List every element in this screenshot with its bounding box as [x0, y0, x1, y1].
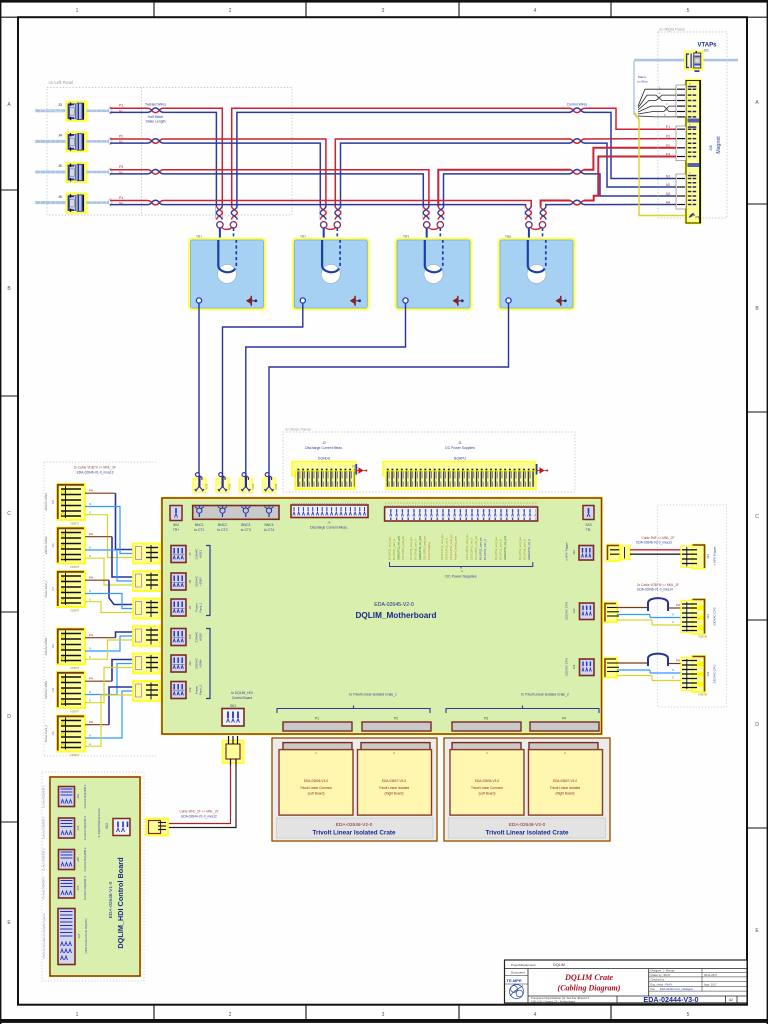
svg-text:EDA-02648-V2-0: EDA-02648-V2-0 [336, 822, 373, 828]
svg-text:D: D [755, 722, 759, 728]
svg-text:RS16 Control bus to DQLPU Type: RS16 Control bus to DQLPU Type A [42, 913, 46, 958]
svg-text:J5: J5 [58, 164, 62, 168]
svg-text:EDA-03606-V3-0: EDA-03606-V3-0 [475, 779, 500, 783]
svg-text:E: E [672, 676, 674, 680]
svg-text:HDB2: HDB2 [199, 633, 203, 641]
svg-text:J24: J24 [572, 664, 576, 669]
svg-text:C: C [7, 511, 11, 517]
svg-text:15V-2/PS2_and_ps+: 15V-2/PS2_and_ps+ [474, 535, 478, 560]
svg-text:P4: P4 [119, 196, 123, 200]
svg-text:230VAC CPS: 230VAC CPS [565, 602, 569, 620]
svg-text:Control DQHDB 2: Control DQHDB 2 [83, 816, 87, 840]
svg-text:VDB79: VDB79 [70, 522, 79, 526]
svg-text:Mains: Mains [638, 75, 647, 79]
svg-text:GND1/PS2_ref_0: GND1/PS2_ref_0 [527, 539, 531, 560]
svg-text:9V-1/PS6_com_0: 9V-1/PS6_com_0 [523, 539, 527, 560]
svg-text:-: - [741, 998, 742, 1002]
svg-text:P2: P2 [666, 135, 670, 139]
svg-text:J30: J30 [51, 731, 55, 736]
svg-text:EDA-02646-V1-0_mxa14: EDA-02646-V1-0_mxa14 [637, 588, 673, 592]
svg-text:to CT4: to CT4 [264, 528, 274, 532]
svg-text:File:: File: [651, 987, 656, 991]
svg-text:Power Pack_2: Power Pack_2 [44, 724, 48, 742]
svg-text:08-11-2017: 08-11-2017 [704, 973, 718, 977]
svg-text:EDA-03607-V3-0: EDA-03607-V3-0 [382, 779, 407, 783]
svg-text:PE: PE [352, 465, 356, 469]
svg-text:Control DQHDB 3: Control DQHDB 3 [42, 848, 46, 871]
svg-text:PH: PH [89, 489, 93, 493]
svg-text:1: 1 [76, 1012, 79, 1018]
svg-text:6V-1/PS1_com_0: 6V-1/PS1_com_0 [392, 539, 396, 560]
svg-text:E: E [89, 511, 91, 515]
svg-text:A2: A2 [729, 998, 733, 1002]
svg-text:J36: J36 [709, 145, 713, 151]
svg-text:J13: J13 [76, 794, 80, 799]
svg-text:J22: J22 [572, 550, 576, 555]
svg-text:SK3: SK3 [585, 523, 591, 527]
svg-text:E: E [89, 699, 91, 703]
svg-text:1: 1 [76, 8, 79, 14]
svg-text:Control DQHDB 4: Control DQHDB 4 [42, 876, 46, 899]
svg-text:J20: J20 [703, 49, 708, 53]
svg-text:DQLIM Crate: DQLIM Crate [564, 973, 613, 982]
svg-text:E: E [89, 655, 91, 659]
svg-text:to Trivolt Linear Isolated Cra: to Trivolt Linear Isolated Crate_1 [349, 693, 397, 697]
svg-text:DQLIM_HDI Control Board: DQLIM_HDI Control Board [116, 857, 125, 948]
svg-text:2x Cable VDB7M <> MNL_3F: 2x Cable VDB7M <> MNL_3F [637, 583, 679, 587]
svg-text:Project/Equipment: Project/Equipment [511, 963, 536, 967]
svg-text:x APS Trigger: x APS Trigger [713, 547, 717, 566]
svg-text:P1: P1 [315, 717, 319, 721]
svg-text:Control DQHDB 1: Control DQHDB 1 [83, 784, 87, 808]
svg-text:Control DQHDB 4: Control DQHDB 4 [83, 876, 87, 900]
svg-text:E: E [89, 742, 91, 746]
svg-text:Power Pack_1: Power Pack_1 [44, 580, 48, 598]
svg-text:N: N [89, 690, 91, 694]
svg-text:Discharge Current Meas.: Discharge Current Meas. [305, 446, 343, 450]
svg-text:J4: J4 [328, 520, 331, 524]
svg-text:230VAC CPU: 230VAC CPU [713, 665, 717, 684]
svg-text:on Left Panel: on Left Panel [49, 80, 74, 85]
svg-text:Trivolt Linear Isolated: Trivolt Linear Isolated [379, 786, 410, 790]
svg-text:E: E [89, 554, 91, 558]
svg-text:E: E [89, 598, 91, 602]
svg-text:4: 4 [534, 1012, 537, 1018]
svg-text:9V-1/PS6_and_ps+: 9V-1/PS6_and_ps+ [409, 536, 413, 560]
svg-text:to DQLIM Motherboard: to DQLIM Motherboard [97, 808, 101, 837]
svg-text:18V2-1/PS2_ref_0: 18V2-1/PS2_ref_0 [445, 537, 449, 560]
svg-text:Control Board: Control Board [232, 696, 253, 700]
svg-text:18V2-2/PS2_ref_0: 18V2-2/PS2_ref_0 [470, 537, 474, 560]
svg-text:BNC1: BNC1 [195, 523, 204, 527]
svg-text:VDB79: VDB79 [70, 565, 79, 569]
svg-text:Trivolt Linear Isolated Crate: Trivolt Linear Isolated Crate [486, 830, 569, 837]
svg-text:9V-1/PS2_and_ps+: 9V-1/PS2_and_ps+ [494, 536, 498, 560]
svg-text:PH: PH [676, 603, 680, 607]
svg-text:Discharge Current Meas.: Discharge Current Meas. [310, 526, 348, 530]
svg-text:P1: P1 [666, 125, 670, 129]
svg-text:18V2-1/PS2_and_ps+: 18V2-1/PS2_and_ps+ [440, 533, 444, 560]
svg-text:Stake Length: Stake Length [146, 119, 166, 123]
svg-text:Power Cooling_com: Power Cooling_com [454, 535, 458, 560]
svg-text:J28: J28 [51, 644, 55, 649]
svg-text:230VAC HDB1: 230VAC HDB1 [44, 493, 48, 511]
svg-text:on Right Panel: on Right Panel [659, 27, 685, 32]
svg-text:GND1/PS1_ref_gnd: GND1/PS1_ref_gnd [397, 536, 401, 560]
svg-text:VDB79: VDB79 [70, 710, 79, 714]
svg-text:P2: P2 [394, 717, 398, 721]
svg-text:DQLIM_Motherboard: DQLIM_Motherboard [356, 611, 437, 620]
svg-text:P4: P4 [666, 153, 670, 157]
svg-text:(Left Board): (Left Board) [308, 792, 325, 796]
svg-text:J29: J29 [51, 687, 55, 692]
svg-text:J12: J12 [188, 687, 192, 692]
svg-text:BQAPU: BQAPU [454, 457, 466, 461]
svg-text:EDA-02646-V1-0_mxa13: EDA-02646-V1-0_mxa13 [77, 470, 114, 474]
svg-text:J21: J21 [706, 554, 710, 559]
svg-text:Power Cooling: Power Cooling [427, 542, 431, 560]
svg-text:PH: PH [89, 677, 93, 681]
svg-text:to Cable VDB79 <> MNL_3F: to Cable VDB79 <> MNL_3F [74, 466, 116, 470]
svg-text:HDB4: HDB4 [199, 659, 203, 667]
svg-text:N4: N4 [119, 201, 123, 205]
svg-text:Cable RdF <> MNL_2F: Cable RdF <> MNL_2F [642, 536, 675, 540]
svg-text:PH: PH [89, 576, 93, 580]
svg-text:Cable MNL_2F <> MNL_2F: Cable MNL_2F <> MNL_2F [179, 810, 218, 814]
svg-text:230VAC HDB4: 230VAC HDB4 [44, 681, 48, 699]
svg-text:TR-: TR- [586, 528, 592, 532]
svg-text:230VAC HDB3: 230VAC HDB3 [44, 536, 48, 554]
svg-text:15V2-1/PS2_com_ps-: 15V2-1/PS2_com_ps- [449, 534, 453, 560]
svg-text:P2: P2 [119, 134, 123, 138]
svg-text:Control Wires: Control Wires [567, 103, 588, 107]
svg-text:x APS Trigger: x APS Trigger [565, 542, 569, 560]
svg-text:D: D [7, 714, 11, 720]
svg-text:(Left Board): (Left Board) [479, 792, 496, 796]
svg-text:VDB79: VDB79 [70, 609, 79, 613]
svg-text:P4: P4 [562, 717, 566, 721]
svg-text:HDS Control from DQLPU: HDS Control from DQLPU [84, 919, 88, 954]
svg-text:DQHDS: DQHDS [318, 457, 331, 461]
svg-text:VDB7M: VDB7M [698, 635, 707, 639]
svg-text:P3: P3 [666, 144, 670, 148]
svg-text:TE-MPE: TE-MPE [507, 978, 522, 983]
svg-text:P3: P3 [119, 165, 123, 169]
svg-text:HDB1: HDB1 [199, 550, 203, 558]
svg-text:J2: J2 [322, 441, 326, 445]
svg-text:N1: N1 [666, 175, 670, 179]
svg-text:N1: N1 [119, 109, 123, 113]
svg-text:SK2: SK2 [173, 523, 179, 527]
svg-text:J8: J8 [188, 580, 192, 584]
svg-text:SK2: SK2 [105, 823, 109, 829]
svg-text:Control DQHDB 2: Control DQHDB 2 [42, 816, 46, 839]
svg-text:BNC2: BNC2 [218, 523, 227, 527]
svg-text:BNC4: BNC4 [264, 523, 273, 527]
svg-text:J15: J15 [76, 857, 80, 862]
svg-text:4: 4 [534, 8, 537, 14]
svg-text:(Cabling Diagram): (Cabling Diagram) [558, 984, 621, 993]
svg-text:Magnet: Magnet [716, 136, 722, 154]
svg-text:15V-1/PS1_and_ps+: 15V-1/PS1_and_ps+ [401, 535, 405, 560]
svg-text:P1: P1 [119, 104, 123, 108]
svg-text:Checked by :: Checked by : [651, 978, 666, 982]
svg-text:DC Power Supplies: DC Power Supplies [445, 446, 475, 450]
svg-text:J17: J17 [77, 933, 81, 938]
svg-text:5: 5 [687, 1012, 690, 1018]
svg-text:PH: PH [89, 532, 93, 536]
svg-text:J11: J11 [188, 661, 192, 666]
svg-text:GND1/PS6_ref_gnd: GND1/PS6_ref_gnd [418, 536, 422, 560]
svg-text:Trivolt Linear Common: Trivolt Linear Common [471, 786, 503, 790]
svg-text:18V2-2/PS2_and_ps+: 18V2-2/PS2_and_ps+ [465, 533, 469, 560]
svg-text:N: N [672, 613, 674, 617]
svg-text:P3: P3 [484, 717, 488, 721]
svg-text:J3: J3 [58, 103, 62, 107]
svg-text:PE: PE [696, 216, 701, 220]
svg-text:on Rear Panel: on Rear Panel [285, 427, 311, 432]
svg-text:Drawn by : Rb.Pt.: Drawn by : Rb.Pt. [651, 973, 672, 977]
svg-text:to CT3: to CT3 [241, 528, 251, 532]
svg-text:C: C [755, 514, 759, 520]
svg-text:to CT2: to CT2 [217, 528, 227, 532]
svg-text:Twisted Wires: Twisted Wires [145, 103, 166, 107]
svg-text:J24: J24 [706, 671, 710, 676]
svg-text:Control DQHDB 1: Control DQHDB 1 [42, 785, 46, 808]
svg-text:EDA-02646-V2-0_mxa13: EDA-02646-V2-0_mxa13 [636, 541, 672, 545]
svg-text:to Trivolt Linear Isolated Cra: to Trivolt Linear Isolated Crate_2 [521, 693, 569, 697]
svg-text:J16: J16 [76, 885, 80, 890]
svg-text:Appr. 2017: Appr. 2017 [704, 983, 717, 987]
svg-text:N: N [89, 589, 91, 593]
svg-text:N: N [89, 502, 91, 506]
svg-text:Document: Document [511, 971, 525, 975]
svg-text:N: N [89, 546, 91, 550]
svg-text:EDA-02644-V1-0_mxa12: EDA-02644-V1-0_mxa12 [181, 814, 217, 818]
svg-text:TR+: TR+ [173, 528, 179, 532]
svg-text:DC Power Supplies: DC Power Supplies [445, 575, 476, 579]
svg-text:VDB79: VDB79 [70, 753, 79, 757]
svg-text:J14: J14 [76, 825, 80, 830]
svg-text:PH: PH [676, 659, 680, 663]
svg-text:9V-1/PS2_com_0: 9V-1/PS2_com_0 [499, 539, 503, 560]
svg-text:on Wire: on Wire [637, 80, 648, 84]
svg-text:DQLIM: DQLIM [553, 963, 565, 967]
svg-text:Designer : J. Mourao: Designer : J. Mourao [651, 968, 676, 972]
svg-text:N3: N3 [119, 171, 123, 175]
svg-text:6V-1/PS2_com_ps-: 6V-1/PS2_com_ps- [479, 537, 483, 560]
svg-text:EDA-02646-V1-0: EDA-02646-V1-0 [108, 881, 114, 918]
svg-text:Trivolt Linear Isolated Crate: Trivolt Linear Isolated Crate [313, 830, 396, 837]
svg-text:EDA-02444-V3-0_Cablagem.: EDA-02444-V3-0_Cablagem. [660, 987, 694, 991]
svg-text:PH: PH [89, 633, 93, 637]
svg-text:9V-1/PS6_com_0: 9V-1/PS6_com_0 [414, 539, 418, 560]
svg-text:J1: J1 [458, 441, 462, 445]
svg-text:Trivolt Linear Isolated: Trivolt Linear Isolated [550, 786, 581, 790]
svg-text:J7: J7 [188, 552, 192, 556]
svg-text:J4: J4 [58, 134, 62, 138]
svg-text:BNC3: BNC3 [241, 523, 250, 527]
svg-text:6V-1/PS2_com_0: 6V-1/PS2_com_0 [483, 539, 487, 560]
svg-text:(Right Board): (Right Board) [556, 792, 575, 796]
svg-text:N4: N4 [666, 201, 670, 205]
svg-text:N2: N2 [666, 183, 670, 187]
svg-text:N2: N2 [119, 140, 123, 144]
svg-text:SK1: SK1 [230, 704, 236, 708]
svg-text:230VAC CPU: 230VAC CPU [565, 658, 569, 676]
svg-text:J23: J23 [706, 614, 710, 619]
svg-text:VDB79: VDB79 [70, 666, 79, 670]
svg-text:230VAC CPS: 230VAC CPS [713, 607, 717, 626]
svg-text:(Right Board): (Right Board) [385, 792, 404, 796]
svg-text:2: 2 [229, 1012, 232, 1018]
svg-text:3: 3 [382, 1012, 385, 1018]
svg-text:6V-1/PS1_and_ps+: 6V-1/PS1_and_ps+ [388, 536, 392, 560]
svg-text:EDA-02444-V3-0: EDA-02444-V3-0 [643, 995, 698, 1004]
svg-text:Pack_2: Pack_2 [199, 685, 203, 695]
svg-text:GND1/PS2_ref_gnd: GND1/PS2_ref_gnd [503, 536, 507, 560]
svg-text:EDA-03607-V3-0: EDA-03607-V3-0 [553, 779, 578, 783]
svg-text:Control DQHDB 3: Control DQHDB 3 [83, 847, 87, 871]
svg-text:EDA-03606-V3-0: EDA-03606-V3-0 [304, 779, 329, 783]
svg-text:N3: N3 [666, 192, 670, 196]
svg-text:J26: J26 [51, 543, 55, 548]
svg-text:VDB7M: VDB7M [698, 693, 707, 697]
svg-text:15V-2/PS2_and_ps+: 15V-2/PS2_and_ps+ [423, 535, 427, 560]
svg-text:J10: J10 [188, 634, 192, 639]
svg-text:5: 5 [687, 8, 690, 14]
svg-text:J23: J23 [572, 608, 576, 613]
svg-text:9V-1/PS2_and_ps+: 9V-1/PS2_and_ps+ [518, 536, 522, 560]
svg-text:EDA-02648-V2-0: EDA-02648-V2-0 [509, 822, 546, 828]
svg-text:J6: J6 [58, 195, 62, 199]
svg-text:to CT1: to CT1 [194, 528, 204, 532]
svg-text:Pack_1: Pack_1 [199, 602, 203, 612]
svg-text:HDB3: HDB3 [199, 577, 203, 585]
svg-text:N: N [89, 734, 91, 738]
svg-text:J27: J27 [51, 586, 55, 591]
svg-text:Eng. check : Rb.Pt.: Eng. check : Rb.Pt. [651, 983, 673, 987]
svg-text:Trivolt Linear Common: Trivolt Linear Common [300, 786, 332, 790]
svg-text:PH: PH [89, 720, 93, 724]
svg-text:E: E [672, 620, 674, 624]
svg-text:N: N [89, 647, 91, 651]
svg-text:CH-1211 Geneva 23 - Switzerlan: CH-1211 Geneva 23 - Switzerland [531, 1000, 575, 1004]
svg-text:J9: J9 [188, 606, 192, 610]
svg-text:to DQLIM_HDI: to DQLIM_HDI [231, 691, 253, 695]
svg-text:EDA-02645-V2-0: EDA-02645-V2-0 [374, 602, 414, 608]
svg-text:N: N [672, 668, 674, 672]
svg-text:2: 2 [229, 8, 232, 14]
svg-text:230VAC HDB2: 230VAC HDB2 [44, 637, 48, 655]
svg-text:3: 3 [382, 8, 385, 14]
svg-text:J25: J25 [51, 499, 55, 504]
